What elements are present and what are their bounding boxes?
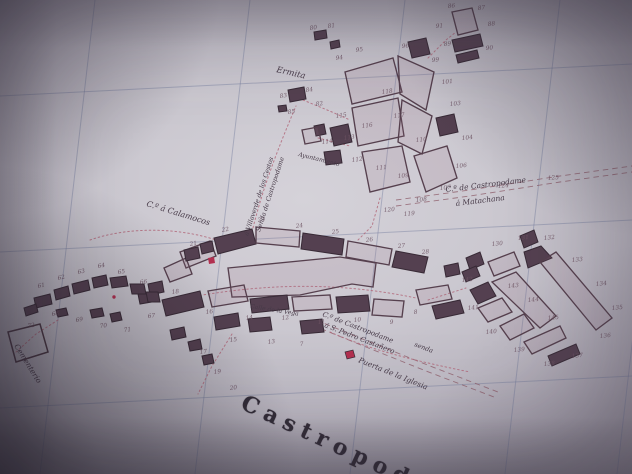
parcel-number: 114	[321, 138, 333, 146]
parcel-number: 72	[27, 322, 36, 329]
parcel-number: 18	[171, 289, 179, 296]
red-square-landmark	[208, 257, 215, 264]
building-block	[330, 40, 340, 49]
parcel-number: 144	[528, 297, 540, 304]
building-block	[456, 50, 479, 63]
parcel-number: 141	[468, 305, 480, 312]
parcel-number: 140	[486, 329, 498, 336]
parcel-number: 91	[436, 23, 444, 30]
parcel-number: 143	[508, 283, 520, 290]
parcel-number: 85	[287, 109, 295, 116]
parcel-number: 113	[343, 134, 355, 142]
parcel-number: 15	[229, 337, 237, 344]
building-block	[170, 327, 186, 340]
parcel-number: 132	[544, 235, 556, 242]
parcel-number: 20	[228, 385, 237, 392]
parcel-number: 138	[544, 361, 556, 368]
parcel-number: 119	[404, 211, 416, 218]
building-block	[470, 282, 496, 304]
building-block	[24, 304, 38, 316]
building-block	[92, 275, 108, 288]
parcel-number: 22	[220, 227, 230, 234]
parcel-number: 139	[514, 347, 526, 354]
building-block	[54, 286, 70, 300]
parcel-number: 110	[416, 137, 428, 144]
building-block	[314, 30, 327, 40]
parcel-number: 106	[456, 163, 468, 170]
parcel-number: 89	[444, 41, 452, 48]
building-block	[301, 233, 344, 255]
parcel-number: 86	[448, 3, 456, 10]
parcel-number: 70	[99, 323, 107, 330]
parcel-number: 120	[384, 207, 396, 214]
parcel-number: 27	[397, 243, 406, 250]
building-block	[452, 34, 483, 52]
building-block	[432, 300, 464, 319]
label-road-matachana-line2: á Matachana	[455, 193, 505, 208]
parcel-number: 90	[486, 45, 494, 52]
map-artwork: 9495969910110310410610710810911011111211…	[0, 0, 632, 474]
parcel-number: 94	[335, 55, 343, 62]
label-camino-calamocos: C.º á Calamocos	[145, 199, 211, 227]
parcel-number: 13	[267, 339, 275, 346]
parcel-number: 96	[402, 43, 410, 50]
parcel-number: 134	[596, 281, 608, 288]
label-senda-small: senda	[413, 340, 434, 354]
parcel-number: 63	[77, 268, 86, 275]
label-cementerio: Cementerio	[12, 342, 43, 385]
parcel-number: 137	[572, 353, 584, 360]
parcel-number: 81	[327, 23, 335, 30]
parcel-number: 28	[421, 249, 430, 256]
path-southwest	[198, 334, 232, 394]
grid-line-horizontal	[0, 376, 632, 408]
parcel-number: 83	[279, 93, 287, 100]
building-block	[336, 295, 370, 313]
parcel-number: 108	[416, 197, 428, 204]
parcel-number: 69	[75, 317, 84, 324]
building-block	[164, 258, 192, 282]
parcel-number: 99	[432, 57, 440, 64]
parcel-number: 8	[414, 310, 419, 316]
parcel-number: 136	[600, 333, 612, 340]
parcel-number: 25	[330, 229, 339, 236]
parcel-number: 101	[442, 79, 454, 86]
building-block	[408, 38, 430, 58]
parcel-number: 61	[37, 283, 45, 290]
building-block	[72, 280, 90, 294]
parcel-number: 19	[213, 369, 221, 376]
building-block	[372, 299, 404, 317]
parcel-number: 115	[335, 112, 347, 120]
parcel-number: 145	[548, 315, 560, 322]
label-puerta-iglesia: Puerta de la Iglesia	[356, 355, 429, 391]
parcel-number: 80	[309, 25, 317, 32]
parcel-number: 84	[305, 87, 313, 94]
building-block	[184, 247, 200, 261]
map-photo: 9495969910110310410610710810911011111211…	[0, 0, 632, 474]
building-block	[110, 312, 122, 322]
building-block	[90, 308, 104, 318]
puerta-iglesia-symbol	[345, 350, 355, 359]
parcel-number: 16	[205, 309, 213, 316]
parcel-number: 135	[612, 305, 624, 312]
parcel-number: 112	[351, 156, 363, 164]
parcel-number: 71	[123, 327, 131, 334]
parcel-number: 142	[462, 277, 474, 284]
grid-line-horizontal	[0, 64, 632, 96]
parcel-number: 62	[57, 274, 66, 281]
parcel-number: 87	[478, 5, 486, 12]
path-villaverde	[252, 106, 296, 232]
label-ermita: Ermita	[274, 65, 306, 82]
building-block	[214, 313, 240, 330]
parcel-number: 109	[398, 173, 410, 180]
building-block	[352, 98, 404, 146]
ermita-building	[288, 87, 306, 102]
parcel-number: 64	[97, 263, 106, 270]
path-calamocos	[90, 230, 216, 240]
building-block	[302, 127, 321, 144]
grid-line-vertical	[617, 0, 632, 474]
parcel-number-layer: 9495969910110310410610710810911011111211…	[27, 3, 623, 392]
building-block	[202, 354, 214, 365]
grid-line-vertical	[40, 0, 95, 474]
parcel-number: 130	[492, 241, 504, 248]
building-block	[228, 257, 376, 297]
building-block	[444, 263, 460, 277]
building-block	[416, 285, 452, 305]
parcel-number: 65	[117, 269, 125, 276]
building-block	[146, 292, 160, 302]
parcel-number: 103	[450, 101, 462, 108]
building-block	[162, 291, 204, 316]
parcel-number: 66	[140, 279, 148, 286]
parcel-number: 17	[199, 349, 207, 356]
building-block	[278, 105, 287, 112]
building-block	[208, 285, 248, 307]
building-block	[452, 8, 478, 35]
building-block	[436, 114, 458, 136]
parcel-number: 24	[294, 223, 303, 230]
parcel-number: 125	[548, 175, 560, 182]
parcel-number: 14	[245, 315, 253, 322]
parcel-number: 9	[390, 320, 395, 326]
parcel-number: 67	[148, 313, 156, 320]
parcel-number: 111	[376, 165, 388, 172]
parcel-number: 26	[364, 237, 373, 244]
building-block	[110, 276, 128, 288]
parcel-number: 95	[355, 47, 363, 54]
path-northeast	[428, 32, 456, 58]
parcel-number: 82	[315, 101, 323, 108]
parcel-number: 131	[518, 235, 530, 242]
parcel-number: 7	[300, 342, 305, 348]
parcel-number: 133	[572, 257, 584, 264]
building-block	[292, 295, 332, 311]
parcel-number: 104	[462, 135, 474, 142]
red-dot	[112, 295, 115, 298]
parcel-number: 88	[488, 21, 496, 28]
northeast-cluster	[452, 8, 483, 63]
